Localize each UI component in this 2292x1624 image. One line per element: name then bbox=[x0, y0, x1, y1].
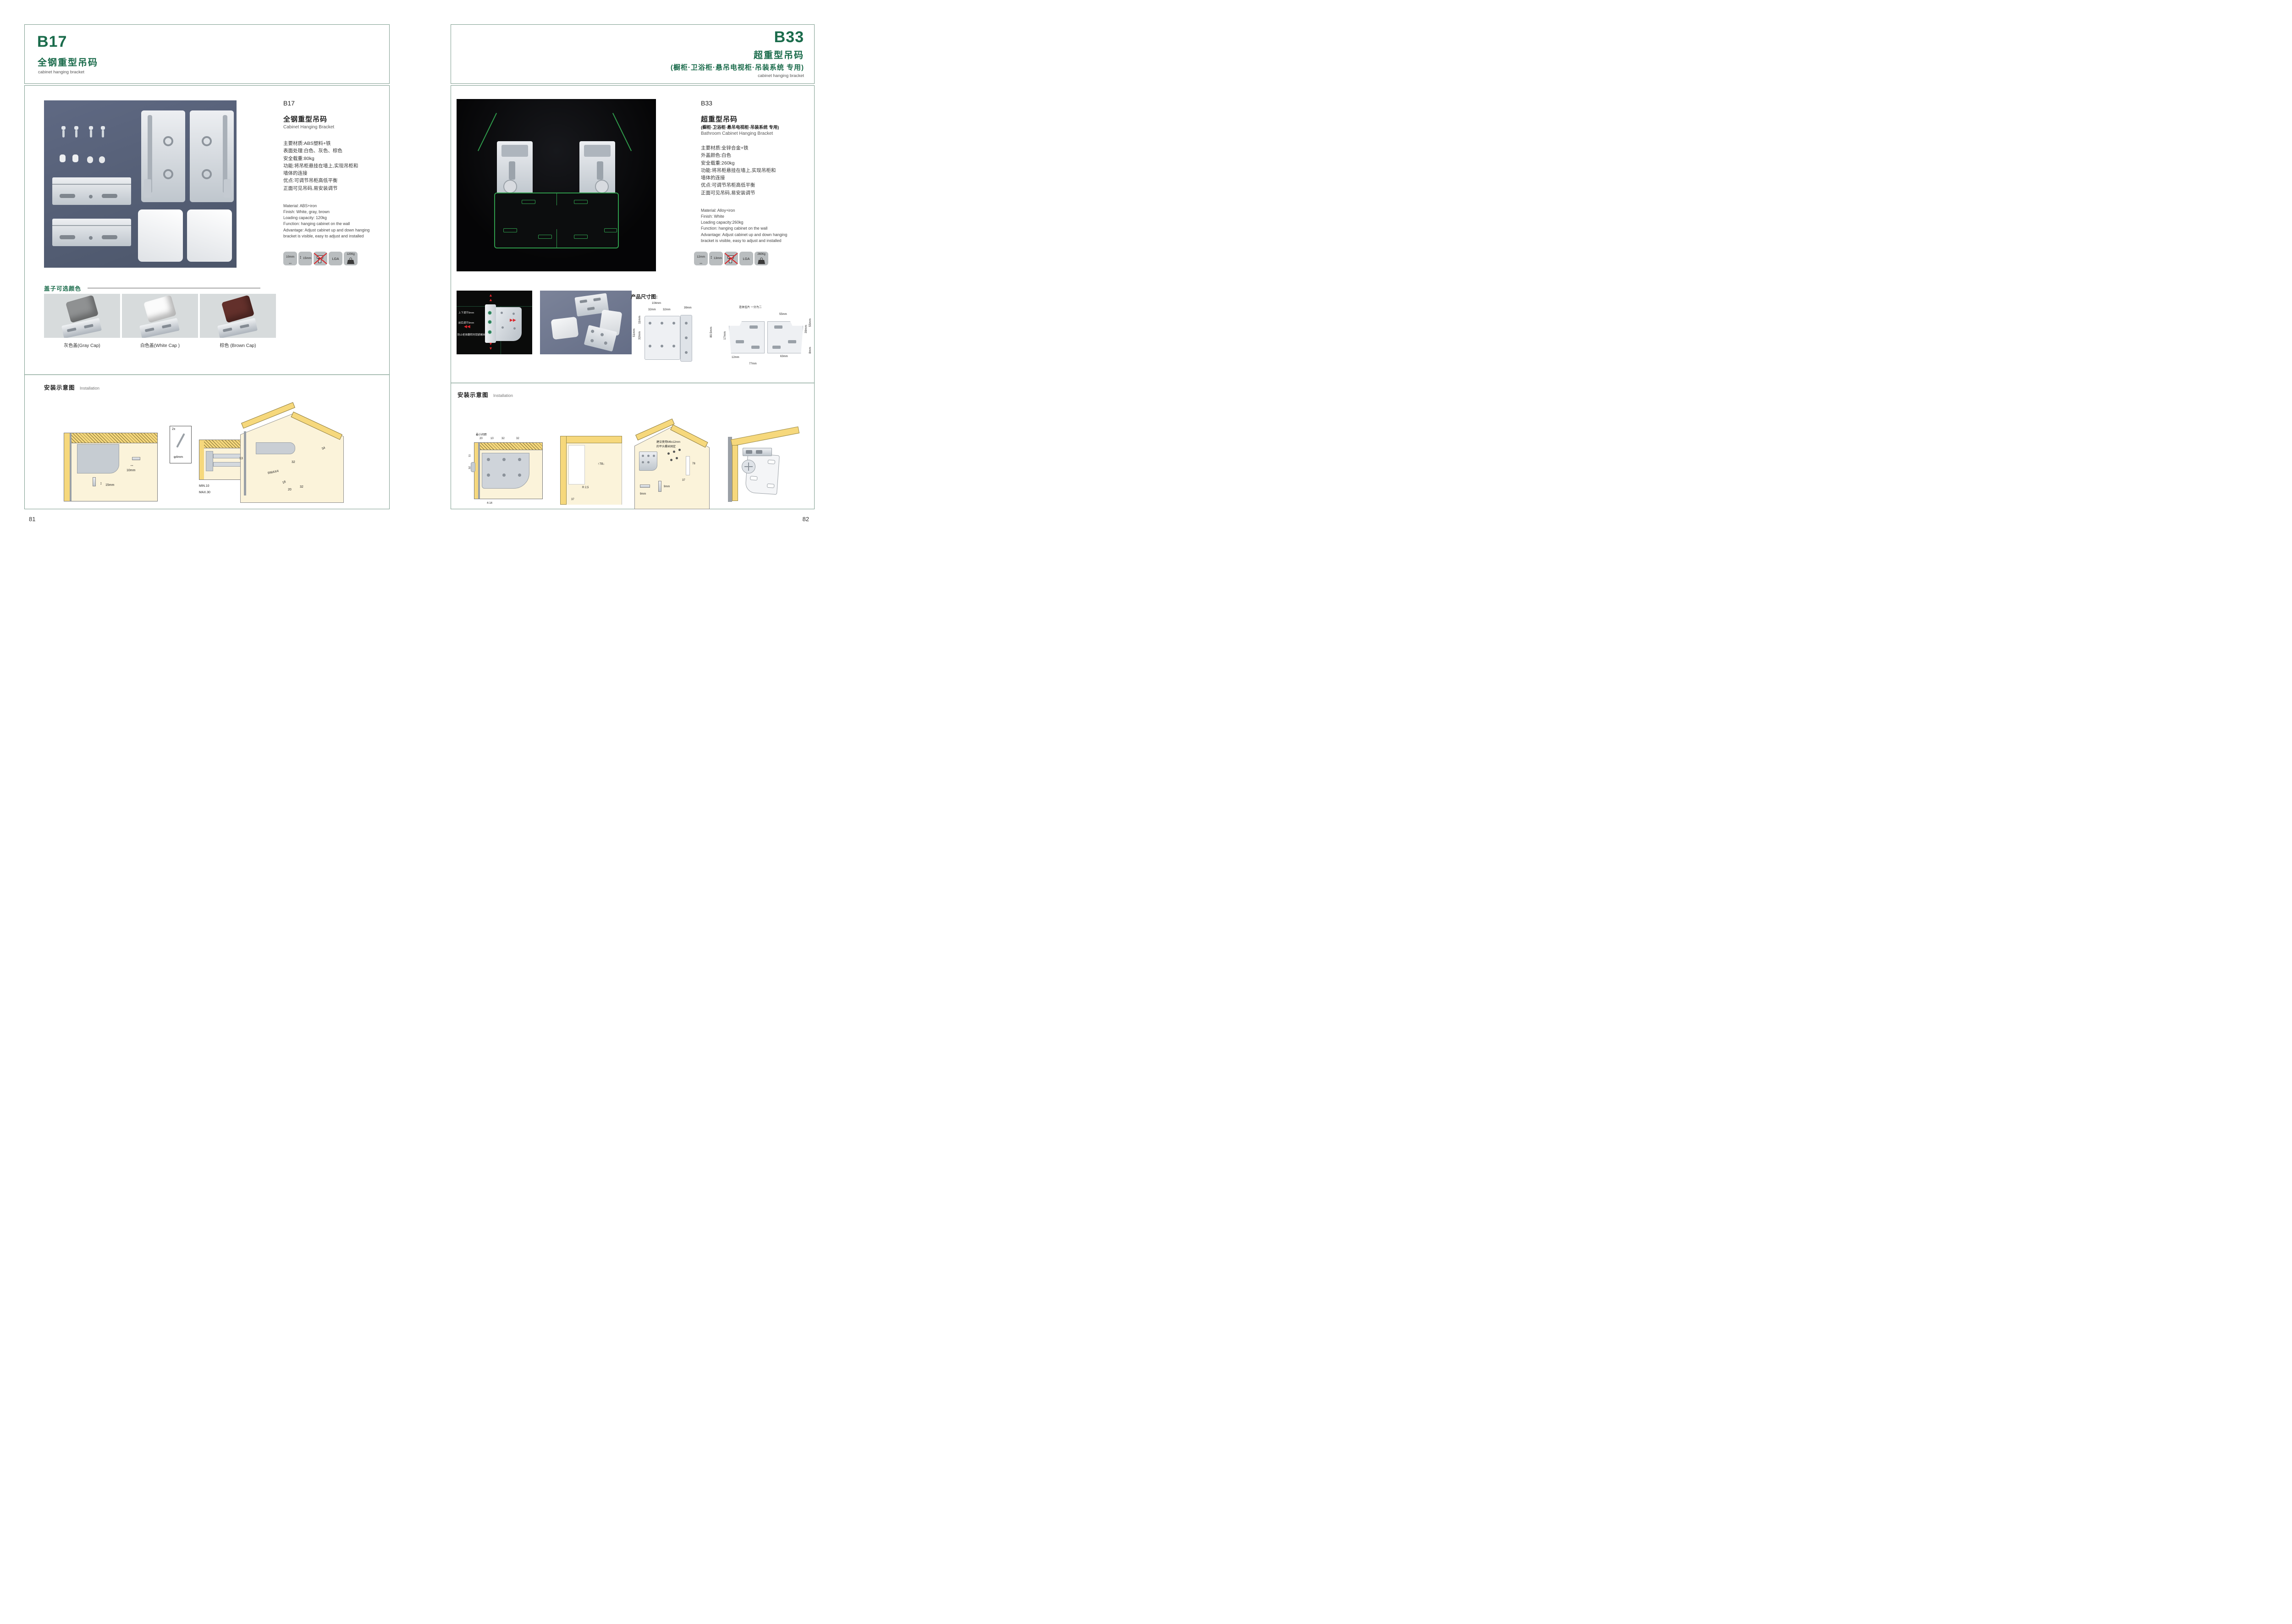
install-diagram-2: ↑78↓ R 2,5 37 bbox=[556, 434, 622, 509]
spec-line: bracket is visible, easy to adjust and i… bbox=[283, 233, 391, 239]
arrow-glyph: ↔ bbox=[130, 462, 134, 467]
dim-10mm: 10mm bbox=[127, 469, 135, 472]
b17-code: B17 bbox=[283, 99, 391, 107]
wood-side bbox=[560, 436, 567, 505]
screw-spec-box: 2x φ4mm bbox=[170, 426, 192, 463]
installation-title-en: Installation bbox=[80, 386, 99, 391]
slot bbox=[574, 235, 588, 239]
b17-product-photo bbox=[44, 100, 237, 268]
dim-20: 20 bbox=[479, 437, 483, 440]
spec-line: Function: hanging cabinet on the wall bbox=[283, 221, 391, 227]
no-drill-icon bbox=[724, 252, 738, 265]
dim-max: MAX.30 bbox=[199, 491, 210, 494]
dim-32b: 32 bbox=[516, 437, 519, 440]
knob-shape bbox=[471, 462, 475, 472]
height-icon: ↕ 13mm bbox=[709, 252, 723, 265]
annotation-lock: 防止柜体翻转的锁紧螺丝 bbox=[457, 333, 485, 336]
no-drill-icon bbox=[314, 252, 327, 265]
left-subtitle-en: cabinet hanging bracket bbox=[38, 70, 84, 75]
b17-feature-icons: 10mm ↔ ↕ 15mm LGA 120Kg bbox=[283, 252, 358, 265]
cap-option-gray: 灰色盖(Gray Cap) bbox=[44, 294, 120, 348]
wood-top bbox=[70, 433, 157, 443]
screw-shape bbox=[102, 130, 104, 138]
bracket-shape bbox=[190, 110, 234, 202]
note-min-gap: 最小间距 bbox=[476, 432, 487, 436]
install-diagram-iso: 13 34 32 RMAX4 18 20 32 bbox=[240, 413, 344, 505]
bracket-top bbox=[743, 448, 772, 456]
rail-shape bbox=[213, 462, 242, 467]
panel-face bbox=[567, 443, 622, 505]
b17-specs-en: Material: ABS+iron Finish: White, gray, … bbox=[283, 203, 391, 239]
left-title-cn: 全钢重型吊码 bbox=[38, 55, 98, 68]
bracket-plate bbox=[645, 316, 680, 360]
dim-32v: 32 bbox=[468, 466, 471, 469]
install-diagram-section: ↔ 10mm ↕ 15mm bbox=[64, 433, 158, 501]
cap-caption: 灰色盖(Gray Cap) bbox=[64, 341, 100, 348]
screw-glyph bbox=[176, 433, 185, 448]
spec-line: 主要材质:全锌合金+铁 bbox=[701, 144, 809, 152]
recess bbox=[686, 456, 690, 475]
installation-title-cn: 安装示意图 bbox=[44, 385, 75, 391]
dim-32b: 32 bbox=[300, 485, 303, 489]
wall-strip bbox=[199, 440, 204, 479]
driver-bit-shape bbox=[640, 484, 650, 488]
dim-4-14: 4-14 bbox=[487, 502, 492, 505]
b17-specs-cn: 主要材质:ABS塑料+铁 表面处理:白色、灰色、棕色 安全载重:80kg 功能:… bbox=[283, 140, 391, 192]
bracket-base-shape bbox=[139, 318, 180, 338]
spec-line: 优点:可调节吊柜高低平衡 bbox=[701, 182, 809, 189]
height-label: 13mm bbox=[711, 257, 723, 260]
rail-bracket-shape bbox=[256, 442, 295, 454]
note-screw-1: 建议使用M6x12mm bbox=[656, 440, 680, 444]
b17-name-cn: 全钢重型吊码 bbox=[283, 114, 391, 124]
cabinet-outline bbox=[240, 413, 344, 503]
wall-panel bbox=[728, 437, 732, 502]
dim-63mm: 63mm bbox=[780, 355, 788, 358]
dim-51mm: 51mm bbox=[633, 329, 636, 337]
back-panel bbox=[70, 433, 72, 501]
red-arrow-left: ◀◀ bbox=[464, 325, 470, 329]
lga-cert-icon: LGA bbox=[739, 252, 753, 265]
b33-parts-photo bbox=[540, 291, 632, 354]
page-right-b33: B33 超重型吊码 (橱柜·卫浴柜·悬吊电视柜·吊装系统 专用) cabinet… bbox=[451, 24, 815, 84]
left-main-box: B17 全钢重型吊码 Cabinet Hanging Bracket 主要材质:… bbox=[24, 85, 390, 509]
spec-line: 功能:将吊柜悬挂在墙上,实现吊柜和 bbox=[701, 167, 809, 174]
lga-label: LGA bbox=[739, 257, 753, 261]
red-arrow-up: ▲ bbox=[489, 293, 493, 297]
wood-top bbox=[560, 436, 622, 443]
dim-32a: 32 bbox=[501, 437, 505, 440]
spec-line: Function: hanging cabinet on the wall bbox=[701, 226, 809, 231]
b17-name-en: Cabinet Hanging Bracket bbox=[283, 125, 391, 130]
dim-39mm: 39mm bbox=[684, 307, 692, 309]
red-arrow-right: ▶▶ bbox=[510, 318, 516, 322]
b17-text-block: B17 全钢重型吊码 Cabinet Hanging Bracket 主要材质:… bbox=[283, 99, 391, 239]
spec-line: 功能:将吊柜悬挂在墙上,实现吊柜和 bbox=[283, 162, 391, 170]
plate-note: 连体挂片 一分为二 bbox=[739, 305, 762, 309]
load-label: 120Kg bbox=[344, 253, 358, 256]
bracket-side bbox=[496, 307, 522, 341]
dim-13: 13 bbox=[239, 457, 243, 460]
arrow-glyph: ↕ bbox=[100, 481, 102, 485]
width-icon: 12mm ↔ bbox=[694, 252, 708, 265]
bracket-flange bbox=[680, 315, 692, 362]
page-number-left: 81 bbox=[29, 516, 35, 523]
spec-line: Advantage: Adjust cabinet up and down ha… bbox=[283, 227, 391, 233]
dim-9mm-b: 9mm bbox=[664, 485, 670, 488]
bracket-cover bbox=[745, 453, 780, 495]
adjust-screw bbox=[488, 330, 492, 334]
wall-plate-wireframe bbox=[494, 193, 619, 248]
spec-line: 安全载重:80kg bbox=[283, 155, 391, 162]
dims-bracket-drawing: 104mm 39mm 32mm 32mm 11mm 32mm 51mm 80.5… bbox=[631, 301, 718, 370]
dim-12mm: 12mm bbox=[732, 356, 739, 359]
page-number-right: 82 bbox=[803, 516, 809, 523]
dims-plate-drawing: 连体挂片 一分为二 55mm 55mm 39mm 8mm 17mm 12mm 6… bbox=[721, 305, 813, 370]
bracket-iso bbox=[639, 451, 657, 471]
dim-10: 10 bbox=[490, 437, 494, 440]
b33-name-cn: 超重型吊码 bbox=[701, 114, 809, 124]
right-title-cn: 超重型吊码 bbox=[754, 48, 804, 61]
dim-9mm-a: 9mm bbox=[640, 493, 646, 495]
dim-15mm: 15mm bbox=[105, 484, 114, 487]
right-title-cn2: (橱柜·卫浴柜·悬吊电视柜·吊装系统 专用) bbox=[671, 62, 804, 72]
cap-option-brown: 棕色 (Brown Cap) bbox=[200, 294, 276, 348]
lga-label: LGA bbox=[329, 257, 342, 261]
dim-78: 78 bbox=[692, 462, 695, 465]
spec-line: 表面处理:白色、灰色、棕色 bbox=[283, 147, 391, 154]
screw-shape bbox=[75, 130, 77, 138]
slot bbox=[503, 228, 517, 232]
right-installation-header: 安装示意图 Installation bbox=[457, 390, 513, 399]
slot bbox=[604, 228, 617, 232]
bracket-base-shape bbox=[61, 318, 102, 338]
height-label: 15mm bbox=[300, 257, 312, 260]
width-icon: 10mm ↔ bbox=[283, 252, 297, 265]
wall-strip bbox=[64, 433, 70, 501]
dim-min: MIN.10 bbox=[199, 484, 209, 488]
right-main-box: B33 超重型吊码 (橱柜·卫浴柜·悬吊电视柜·吊装系统 专用) Bathroo… bbox=[451, 85, 815, 509]
dim-78-value: 78 bbox=[600, 462, 603, 466]
annotation-updown: 上下调节9mm bbox=[458, 311, 474, 314]
green-streak bbox=[478, 113, 497, 151]
screw-qty: 2x bbox=[172, 428, 175, 431]
cap-photo-brown bbox=[200, 294, 276, 338]
catalog-spread: B17 全钢重型吊码 cabinet hanging bracket bbox=[0, 0, 830, 541]
page-left-b17: B17 全钢重型吊码 cabinet hanging bracket bbox=[24, 24, 390, 84]
screw-dia: φ4mm bbox=[174, 456, 183, 459]
bracket-shape bbox=[141, 110, 185, 202]
install-diagram-3: 建议使用M6x12mm 的平头螺丝固定 78 37 9mm 9mm bbox=[634, 426, 710, 511]
spec-line: 墙体的连接 bbox=[283, 170, 391, 177]
horizontal-arrow-icon: ↔ bbox=[694, 260, 708, 265]
driver-bit-shape bbox=[93, 477, 96, 486]
lga-cert-icon: LGA bbox=[329, 252, 342, 265]
wood-column bbox=[732, 445, 738, 501]
width-label: 12mm bbox=[694, 255, 708, 259]
b33-specs-cn: 主要材质:全锌合金+铁 外盖颜色:白色 安全载重:260kg 功能:将吊柜悬挂在… bbox=[701, 144, 809, 197]
white-cap-shape bbox=[138, 209, 183, 262]
plate-split-line bbox=[556, 229, 557, 248]
plate-half-right bbox=[767, 321, 803, 353]
spec-line: 外盖颜色:白色 bbox=[701, 152, 809, 159]
spec-line: 正面可见吊码,易安装调节 bbox=[701, 189, 809, 197]
dim-77mm: 77mm bbox=[749, 363, 757, 365]
dim-37: 37 bbox=[571, 498, 574, 501]
installation-title-cn: 安装示意图 bbox=[457, 392, 489, 398]
anchor-shape bbox=[60, 154, 66, 162]
width-label: 10mm bbox=[283, 255, 297, 259]
b33-text-block: B33 超重型吊码 (橱柜·卫浴柜·悬吊电视柜·吊装系统 专用) Bathroo… bbox=[701, 99, 809, 244]
plate-half-left bbox=[729, 321, 765, 353]
caps-title-text: 盖子可选颜色 bbox=[44, 284, 81, 292]
dim-104mm: 104mm bbox=[652, 302, 661, 305]
horizontal-arrow-icon: ↔ bbox=[283, 260, 297, 265]
wall-plate-shape bbox=[52, 177, 131, 205]
bracket-section-shape bbox=[77, 444, 119, 473]
anchor-shape bbox=[72, 154, 78, 162]
dim-11: 11 bbox=[468, 454, 471, 457]
title-rule bbox=[88, 288, 260, 288]
rail-shape bbox=[213, 454, 242, 458]
adjust-screw bbox=[488, 311, 492, 315]
right-header-box: B33 超重型吊码 (橱柜·卫浴柜·悬吊电视柜·吊装系统 专用) cabinet… bbox=[451, 24, 815, 84]
dim-37: 37 bbox=[682, 479, 685, 482]
spec-line: 正面可见吊码,易安装调节 bbox=[283, 185, 391, 192]
dim-11mm: 11mm bbox=[638, 316, 641, 324]
screw-shape bbox=[90, 130, 92, 138]
dim-r25: R 2,5 bbox=[582, 486, 589, 489]
spec-line: bracket is visible, easy to adjust and i… bbox=[701, 238, 809, 244]
driver-bit-shape bbox=[132, 457, 140, 460]
bracket-shape bbox=[497, 141, 533, 195]
dims-title: 产品尺寸图: bbox=[631, 293, 658, 300]
b33-specs-en: Material: Alloy+iron Finish: White Loadi… bbox=[701, 208, 809, 244]
cap-caption: 棕色 (Brown Cap) bbox=[220, 341, 256, 348]
spec-line: Finish: White, gray, brown bbox=[283, 209, 391, 215]
recess bbox=[568, 445, 585, 484]
dim-55mm-top: 55mm bbox=[779, 313, 787, 316]
cam-screw bbox=[742, 460, 755, 473]
adjust-screw bbox=[488, 320, 492, 324]
cap-photo-gray bbox=[44, 294, 120, 338]
anchor-shape bbox=[87, 156, 93, 163]
screw-shape bbox=[74, 126, 78, 130]
installation-title-en: Installation bbox=[493, 393, 513, 398]
slot bbox=[574, 200, 588, 204]
left-header-box: B17 全钢重型吊码 cabinet hanging bracket bbox=[24, 24, 390, 84]
bracket-face bbox=[482, 453, 529, 489]
cabinet-interior bbox=[241, 413, 343, 502]
wood-top-angled bbox=[731, 426, 799, 446]
cap-option-white: 白色盖(White Cap ) bbox=[122, 294, 198, 348]
red-arrow-down: ▼ bbox=[489, 347, 493, 351]
screw-shape bbox=[101, 126, 105, 130]
section-divider bbox=[25, 374, 389, 375]
spec-line: 优点:可调节吊柜高低平衡 bbox=[283, 177, 391, 184]
install-diagram-4 bbox=[720, 426, 807, 511]
caps-options-row: 灰色盖(Gray Cap) 白色盖(White Cap ) 棕色 (Brown … bbox=[44, 294, 276, 348]
anchor-shape bbox=[99, 156, 105, 163]
back-panel bbox=[478, 443, 480, 499]
section-divider bbox=[451, 383, 814, 383]
b33-name-cn2: (橱柜·卫浴柜·悬吊电视柜·吊装系统 专用) bbox=[701, 124, 809, 130]
b33-adjustment-photo: 上下调节9mm 前后调节9mm 防止柜体翻转的锁紧螺丝 ▲ ▲ ▼ ▼ ◀◀ ▶… bbox=[457, 291, 532, 354]
cap-part bbox=[551, 317, 579, 340]
spec-line: Material: ABS+iron bbox=[283, 203, 391, 209]
b33-feature-icons: 12mm ↔ ↕ 13mm LGA 260Kg bbox=[694, 252, 768, 265]
spec-line: Material: Alloy+iron bbox=[701, 208, 809, 214]
dim-78: ↑78↓ bbox=[598, 462, 605, 466]
left-installation-header: 安装示意图 Installation bbox=[44, 383, 99, 392]
spec-line: 墙体的连接 bbox=[701, 174, 809, 182]
height-icon: ↕ 15mm bbox=[298, 252, 312, 265]
cap-photo-white bbox=[122, 294, 198, 338]
section-panel bbox=[474, 442, 543, 499]
caps-section-title: 盖子可选颜色 bbox=[44, 284, 260, 292]
right-header-text: B33 超重型吊码 (橱柜·卫浴柜·悬吊电视柜·吊装系统 专用) cabinet… bbox=[671, 28, 804, 78]
slot bbox=[538, 235, 552, 239]
load-capacity-icon: 120Kg bbox=[344, 252, 358, 265]
cap-caption: 白色盖(White Cap ) bbox=[140, 341, 180, 348]
dim-80-5mm: 80.5mm bbox=[710, 327, 713, 337]
load-label: 260Kg bbox=[755, 253, 768, 256]
dim-55mm-right: 55mm bbox=[809, 319, 812, 327]
bracket-base-shape bbox=[217, 318, 258, 338]
dim-20: 20 bbox=[288, 488, 292, 491]
load-capacity-icon: 260Kg bbox=[755, 252, 768, 265]
red-arrow-down: ▼ bbox=[489, 342, 493, 346]
left-product-code: B17 bbox=[37, 33, 67, 51]
driver-bit-shape bbox=[658, 481, 661, 492]
spec-line: 安全载重:260kg bbox=[701, 160, 809, 167]
install-diagram-1: 最小间距 20 10 32 32 11 32 4-14 bbox=[468, 432, 543, 509]
dim-17mm: 17mm bbox=[723, 331, 727, 340]
dim-32mm-b: 32mm bbox=[663, 308, 671, 311]
dim-32mm-a: 32mm bbox=[648, 308, 656, 311]
plate-split-line bbox=[556, 193, 557, 205]
slot bbox=[522, 200, 535, 204]
spec-line: Finish: White bbox=[701, 214, 809, 220]
spec-line: Loading capacity:260kg bbox=[701, 220, 809, 226]
white-cap-shape bbox=[187, 209, 232, 262]
wood-top bbox=[478, 443, 542, 450]
b33-code: B33 bbox=[701, 99, 809, 107]
note-screw-2: 的平头螺丝固定 bbox=[656, 444, 676, 448]
right-product-code: B33 bbox=[774, 28, 804, 46]
back-panel bbox=[244, 431, 246, 495]
green-streak bbox=[612, 113, 632, 151]
spec-line: 主要材质:ABS塑料+铁 bbox=[283, 140, 391, 147]
screw-shape bbox=[62, 130, 65, 138]
spec-line: Advantage: Adjust cabinet up and down ha… bbox=[701, 232, 809, 238]
red-arrow-up: ▲ bbox=[489, 298, 493, 302]
dim-32mm-v: 32mm bbox=[638, 331, 641, 340]
b33-name-en: Bathroom Cabinet Hanging Bracket bbox=[701, 131, 809, 136]
screw-shape bbox=[89, 126, 93, 130]
dim-32: 32 bbox=[292, 461, 295, 464]
b33-product-photo bbox=[457, 99, 656, 271]
dim-39mm-right: 39mm bbox=[804, 325, 808, 333]
bracket-shape bbox=[579, 141, 615, 195]
bracket-section-shape bbox=[206, 451, 213, 471]
spec-line: Loading capacity: 120kg bbox=[283, 215, 391, 221]
screw-shape bbox=[61, 126, 66, 130]
right-subtitle-en: cabinet hanging bracket bbox=[758, 73, 804, 78]
dim-8mm: 8mm bbox=[809, 347, 812, 353]
wall-plate-shape bbox=[52, 219, 131, 246]
